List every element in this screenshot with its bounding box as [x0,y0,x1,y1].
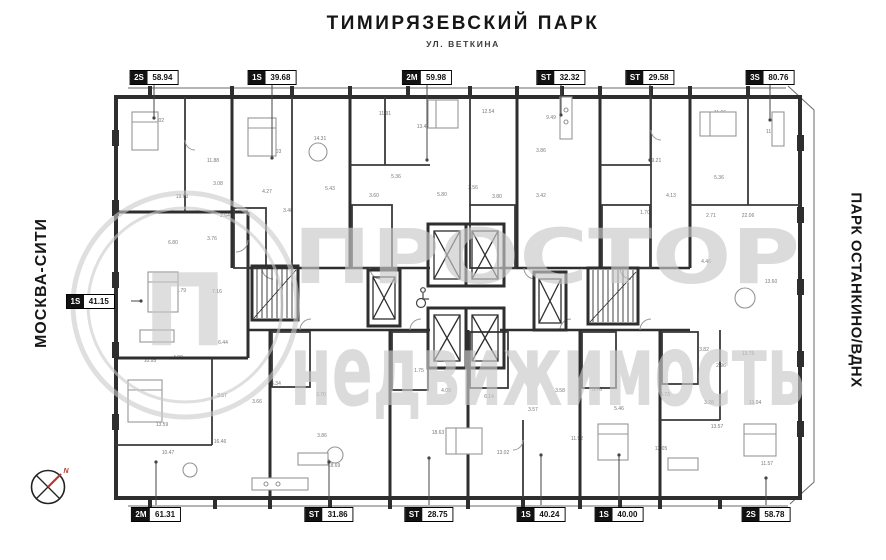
unit-tag-ST-32.32: ST32.32 [536,70,585,85]
unit-tag-2M-59.98: 2M59.98 [402,70,452,85]
unit-type: 3S [747,71,764,84]
unit-tag-1S-40.00: 1S40.00 [595,507,644,522]
unit-type: 1S [596,508,613,521]
unit-type: 2S [131,71,148,84]
unit-type: 1S [249,71,266,84]
unit-area: 40.00 [612,508,642,521]
unit-area: 41.15 [84,295,114,308]
unit-area: 29.58 [644,71,674,84]
unit-type: 2S [743,508,760,521]
unit-area: 32.32 [555,71,585,84]
unit-type: 1S [518,508,535,521]
unit-tag-1S-40.24: 1S40.24 [517,507,566,522]
unit-tag-1S-41.15: 1S41.15 [66,294,115,309]
unit-type: ST [405,508,422,521]
unit-tags-layer: 2S58.941S39.682M59.98ST32.32ST29.583S80.… [0,0,886,560]
unit-tag-1S-39.68: 1S39.68 [248,70,297,85]
unit-tag-2S-58.78: 2S58.78 [742,507,791,522]
unit-area: 31.86 [323,508,353,521]
unit-type: ST [626,71,643,84]
floorplan-page: 11.0211.8819.636.803.762.643.0812.0314.3… [0,0,886,560]
unit-area: 39.68 [265,71,295,84]
unit-type: 1S [67,295,84,308]
unit-tag-ST-31.86: ST31.86 [304,507,353,522]
unit-type: ST [537,71,554,84]
unit-tag-2S-58.94: 2S58.94 [130,70,179,85]
unit-tag-2M-61.31: 2M61.31 [131,507,181,522]
unit-area: 59.98 [421,71,451,84]
unit-area: 61.31 [150,508,180,521]
unit-type: 2M [132,508,150,521]
unit-type: 2M [403,71,421,84]
unit-tag-ST-28.75: ST28.75 [404,507,453,522]
unit-area: 40.24 [534,508,564,521]
unit-area: 58.78 [759,508,789,521]
unit-tag-3S-80.76: 3S80.76 [746,70,795,85]
unit-tag-ST-29.58: ST29.58 [625,70,674,85]
unit-type: ST [305,508,322,521]
unit-area: 58.94 [147,71,177,84]
unit-area: 80.76 [763,71,793,84]
unit-area: 28.75 [423,508,453,521]
